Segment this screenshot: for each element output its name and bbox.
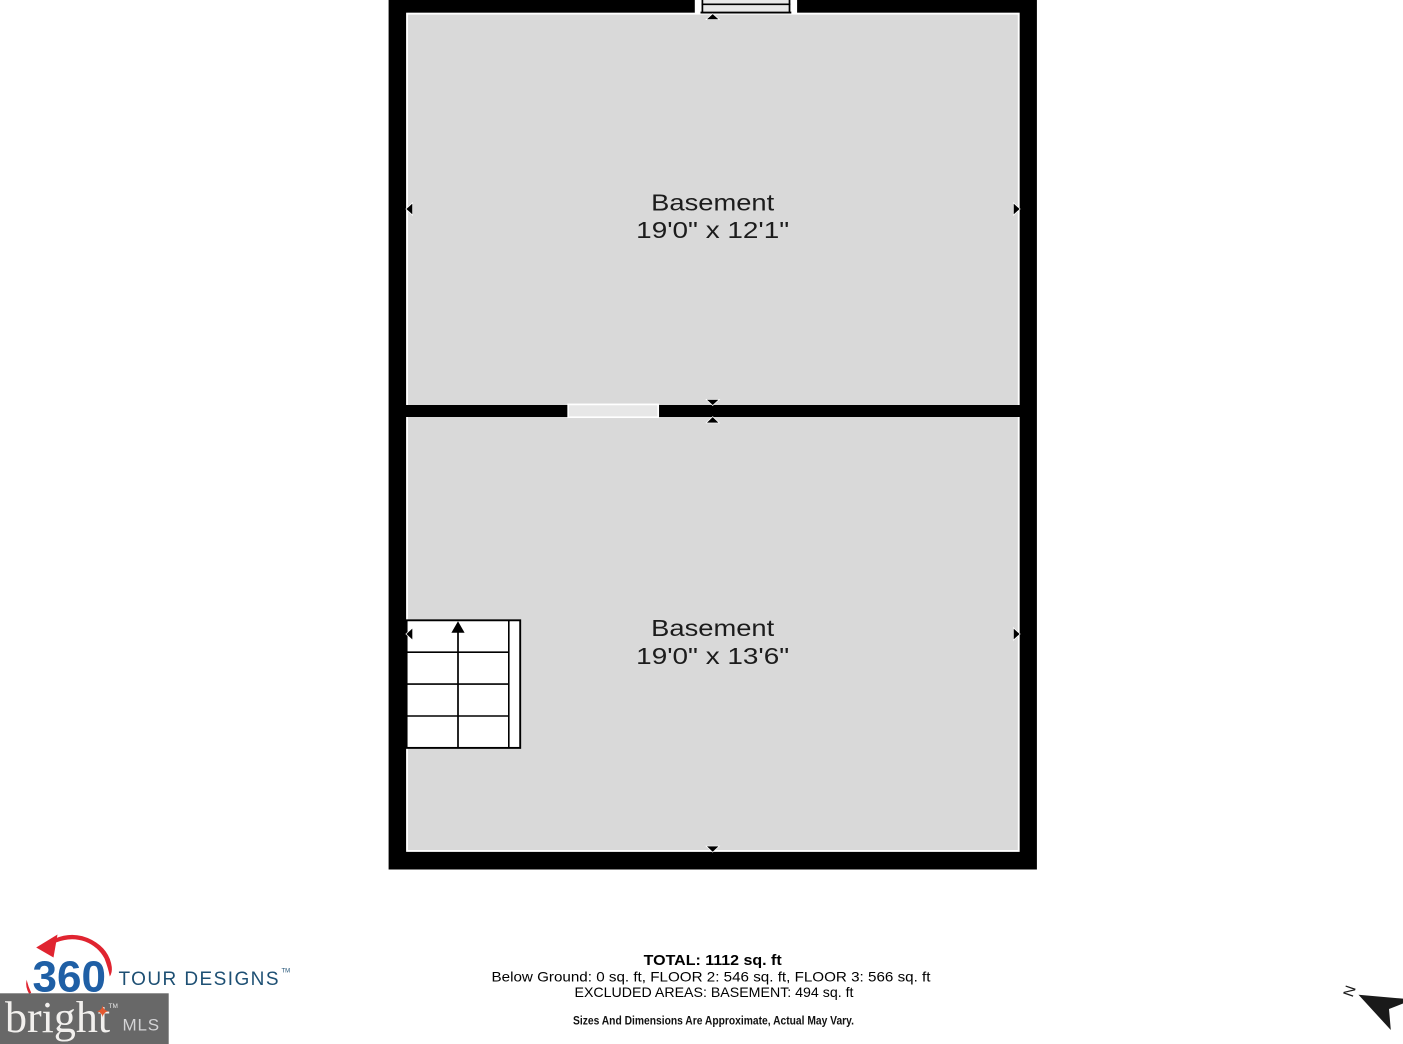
svg-text:MLS: MLS (123, 1016, 160, 1035)
svg-text:TM: TM (282, 969, 291, 975)
svg-text:bright: bright (5, 993, 110, 1042)
svg-text:Below Ground: 0 sq. ft, FLOOR: Below Ground: 0 sq. ft, FLOOR 2: 546 sq.… (492, 969, 931, 985)
svg-text:TOTAL: 1112 sq. ft: TOTAL: 1112 sq. ft (644, 952, 782, 969)
svg-text:EXCLUDED AREAS: BASEMENT: 494: EXCLUDED AREAS: BASEMENT: 494 sq. ft (575, 984, 854, 1000)
svg-text:Basement: Basement (651, 189, 775, 215)
svg-text:Sizes And Dimensions Are Appro: Sizes And Dimensions Are Approximate, Ac… (573, 1014, 854, 1028)
svg-text:TM: TM (109, 1003, 118, 1010)
svg-text:N: N (1340, 983, 1360, 999)
svg-text:Basement: Basement (651, 615, 775, 641)
svg-text:TOUR DESIGNS: TOUR DESIGNS (119, 969, 281, 990)
svg-text:19'0" x 12'1": 19'0" x 12'1" (636, 217, 789, 243)
svg-text:19'0" x 13'6": 19'0" x 13'6" (636, 643, 789, 669)
